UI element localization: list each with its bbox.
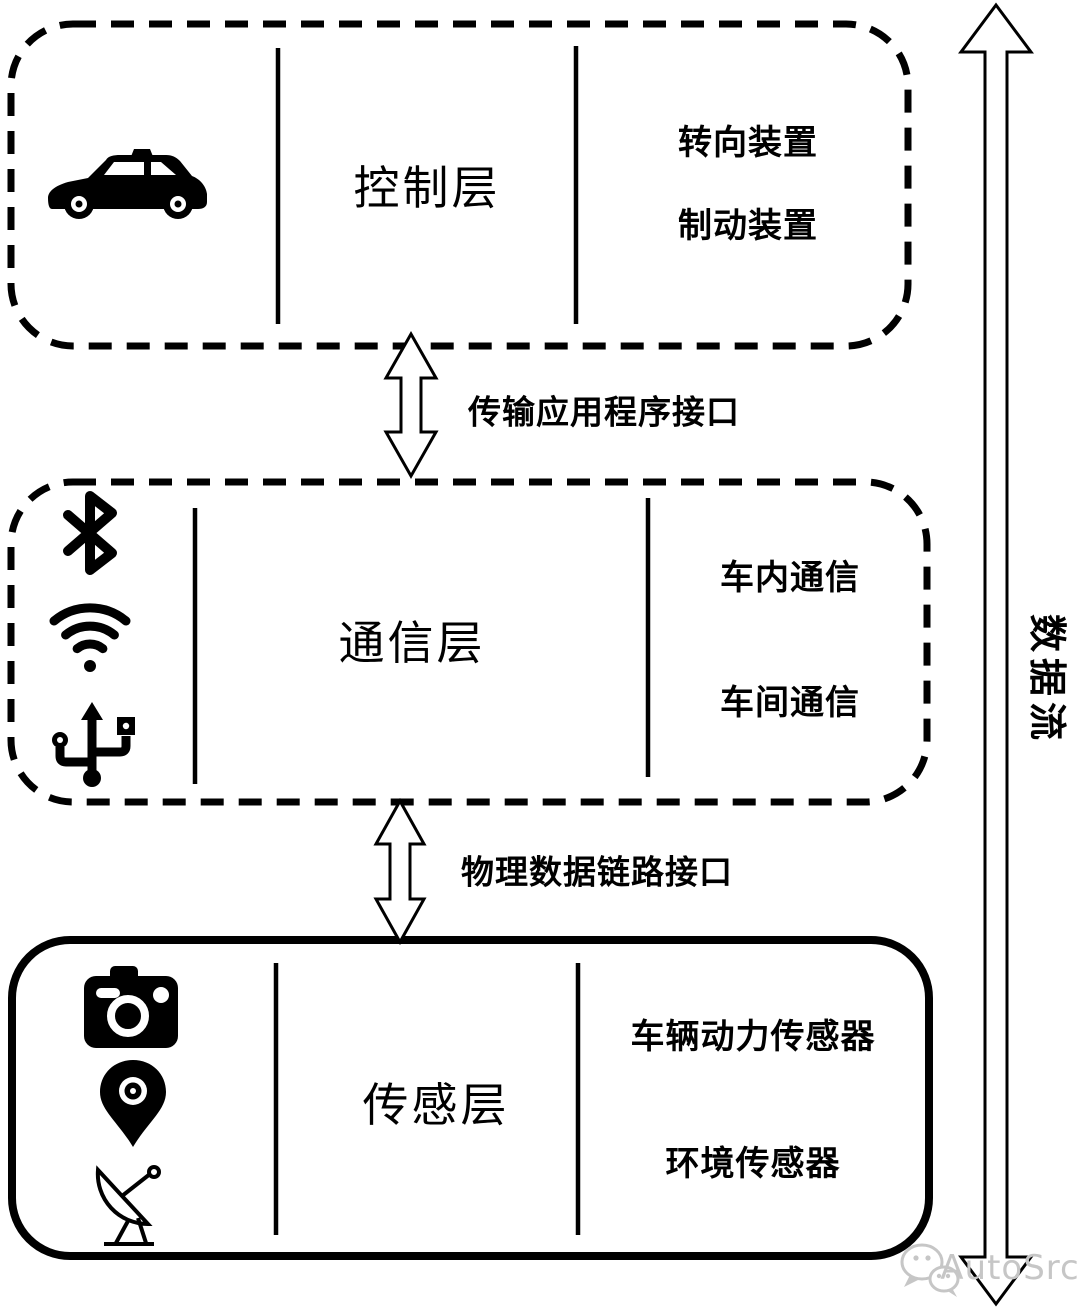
diagram-canvas: 控制层 转向装置 制动装置 传输应用程序接口 通信层 车内通信 车间通信 物理数…: [0, 0, 1080, 1309]
communication-layer-item-v2v: 车间通信: [720, 686, 860, 720]
control-layer-item-braking: 制动装置: [678, 209, 818, 243]
wifi-icon: [54, 608, 126, 672]
transport-api-arrow: [386, 334, 436, 476]
data-flow-label: 数据流: [1028, 614, 1066, 746]
car-icon: [48, 149, 207, 219]
satellite-dish-icon: [98, 1167, 159, 1244]
bluetooth-icon: [68, 496, 112, 570]
control-layer-title: 控制层: [354, 165, 501, 211]
data-flow-arrow: [961, 5, 1031, 1304]
sensing-layer-item-dynamics: 车辆动力传感器: [631, 1020, 876, 1054]
physical-link-arrow: [376, 801, 424, 942]
location-pin-icon: [100, 1060, 166, 1147]
sensing-layer-title: 传感层: [363, 1082, 510, 1128]
sensing-layer-item-environment: 环境传感器: [666, 1147, 841, 1181]
transport-api-label: 传输应用程序接口: [468, 396, 740, 429]
communication-layer-title: 通信层: [339, 620, 486, 666]
watermark-text: AutoSrc: [940, 1251, 1079, 1285]
diagram-shapes: [0, 0, 1080, 1309]
usb-icon: [52, 702, 135, 787]
communication-layer-item-invehicle: 车内通信: [720, 561, 860, 595]
physical-link-label: 物理数据链路接口: [461, 856, 733, 889]
camera-icon: [84, 966, 178, 1048]
control-layer-item-steering: 转向装置: [678, 126, 818, 160]
